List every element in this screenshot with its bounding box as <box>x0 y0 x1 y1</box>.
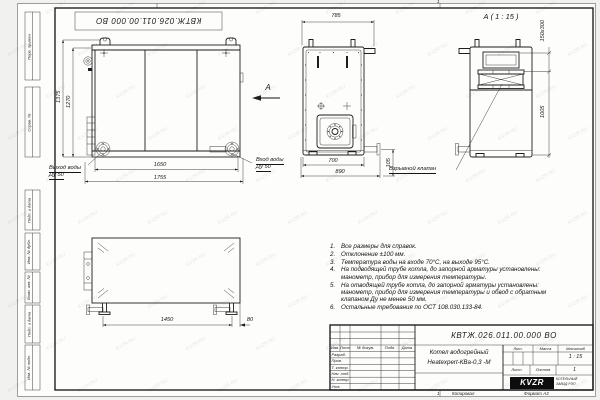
tb-header-data: Дата <box>399 346 415 350</box>
logo-sub-line2: ЗАВОД РЭП <box>556 382 577 387</box>
dim-front-width-inner: 1650 <box>140 163 180 169</box>
tb-header-podp: Подп. <box>381 346 399 350</box>
tb-row-nkontr: Н. контр. <box>332 378 350 382</box>
dim-detail-height: 1005 <box>541 95 547 129</box>
dim-side-width-inner: 700 <box>315 159 351 165</box>
kvzr-logo-subtitle: КОТЕЛЬНЫЙ ЗАВОД РЭП <box>556 377 577 387</box>
note-item-4: 4.На подводящей трубе котла, до запорной… <box>330 266 588 281</box>
detail-view-lines <box>456 40 552 171</box>
inlet-water-line2: Ду 50 <box>256 165 271 172</box>
title-block-doc-number: КВТЖ.026.011.00.000 ВО <box>415 325 593 345</box>
kopiroval-label: Копировал <box>452 392 474 397</box>
top-stamp-doc-number: КВТЖ.026.011.00.000 ВО <box>75 12 222 30</box>
format-label: Формат А3 <box>524 392 549 397</box>
technical-notes: 1.Все размеры для справок. 2.Отклонение … <box>330 243 588 312</box>
margin-field-inv-dubl: Инв. № дубл. <box>26 233 31 270</box>
tb-row-razrab: Разраб. <box>332 353 346 357</box>
view-arrow-letter: А <box>262 84 274 92</box>
tb-header-dokum: № докум. <box>350 346 381 350</box>
note-item-5: 5.На отводящей трубе котла, до запорной … <box>330 282 588 304</box>
tb-scale-label: Масштаб <box>558 347 593 351</box>
note-num: 6. <box>330 304 341 311</box>
tb-sheets-label: Листов <box>530 368 556 372</box>
margin-field-vzam-inv: Взам. инв. № <box>26 272 31 303</box>
dim-side-width-outer: 890 <box>322 170 358 176</box>
side-view-lines <box>301 20 395 178</box>
note-item-6: 6.Остальные требования по ОСТ 108.030.13… <box>330 304 588 311</box>
margin-field-perv-primen: Перв. примен. <box>26 12 31 80</box>
fold-mark-top: 1 <box>437 0 440 5</box>
product-name-line1: Котел водогрейный <box>415 350 503 356</box>
margin-field-podp-data-2: Подп. и дата <box>26 305 31 343</box>
outlet-water-line2: Ду 50 <box>49 173 64 180</box>
tb-row-prov: Пров. <box>332 359 343 363</box>
note-item-1: 1.Все размеры для справок. <box>330 243 588 250</box>
tb-header-list: Лист <box>340 346 350 350</box>
note-text: На отводящей трубе котла, до запорной ар… <box>341 282 546 304</box>
margin-field-podp-data-1: Подп. и дата <box>26 190 31 230</box>
detail-view-title: А ( 1 : 15 ) <box>470 13 532 21</box>
fold-mark-bottom: 1 <box>437 392 440 397</box>
tb-mass-label: Масса <box>533 347 558 351</box>
dim-bottom-length: 1450 <box>147 318 187 324</box>
bottom-view-lines <box>84 238 250 327</box>
tb-row-nachotd: Нач. отд. <box>332 372 350 376</box>
note-text: Остальные требования по ОСТ 108.030.133-… <box>341 304 483 311</box>
note-text: Отклонение ±100 мм. <box>341 251 405 258</box>
note-text: На подводящей трубе котла, до запорной а… <box>341 266 541 281</box>
tb-sheets-value: 1 <box>556 368 593 373</box>
note-text: Все размеры для справок. <box>341 243 417 250</box>
note-num: 3. <box>330 259 341 266</box>
note-item-3: 3.Температура воды на входе 70°С, на вых… <box>330 259 588 266</box>
dim-front-height-inner: 1270 <box>67 82 73 122</box>
note-num: 4. <box>330 266 341 281</box>
note-num: 2. <box>330 251 341 258</box>
explosion-valve-label: Взрывной клапан <box>389 167 436 174</box>
product-name-line2: Heatexpert-КВа-0,3 -М <box>415 360 503 366</box>
dim-front-height-outer: 1375 <box>57 77 63 117</box>
kvzr-logo: KVZR <box>510 377 554 389</box>
inlet-water-label: Вход воды Ду 50 <box>256 158 284 172</box>
tb-row-tkontr: Т. контр. <box>332 366 349 370</box>
tb-scale-value: 1 : 15 <box>558 355 593 360</box>
note-item-2: 2.Отклонение ±100 мм. <box>330 251 588 258</box>
drawing-sheet: KVZR.RUKVZR.RUKVZR.RUKVZR.RUKVZR.RUKVZR.… <box>0 0 600 400</box>
margin-field-sprav-no: Справ. № <box>26 87 31 157</box>
tb-lit-label: Лит. <box>503 347 533 351</box>
tb-sheet-label: Лист <box>503 368 530 372</box>
tb-row-utv: Утв. <box>332 385 341 389</box>
dim-side-top: 785 <box>318 14 354 20</box>
margin-field-inv-podl: Инв. № подл. <box>26 345 31 390</box>
note-num: 1. <box>330 243 341 250</box>
dim-front-width-outer: 1755 <box>140 176 180 182</box>
dim-bottom-offset: 80 <box>242 318 258 324</box>
outlet-water-label: Выход воды Ду 50 <box>49 166 81 180</box>
note-num: 5. <box>330 282 341 304</box>
dim-detail-valve: 150x300 <box>541 14 547 48</box>
note-text: Температура воды на входе 70°С, на выход… <box>341 259 490 266</box>
tb-header-izm: Изм. <box>330 346 340 350</box>
